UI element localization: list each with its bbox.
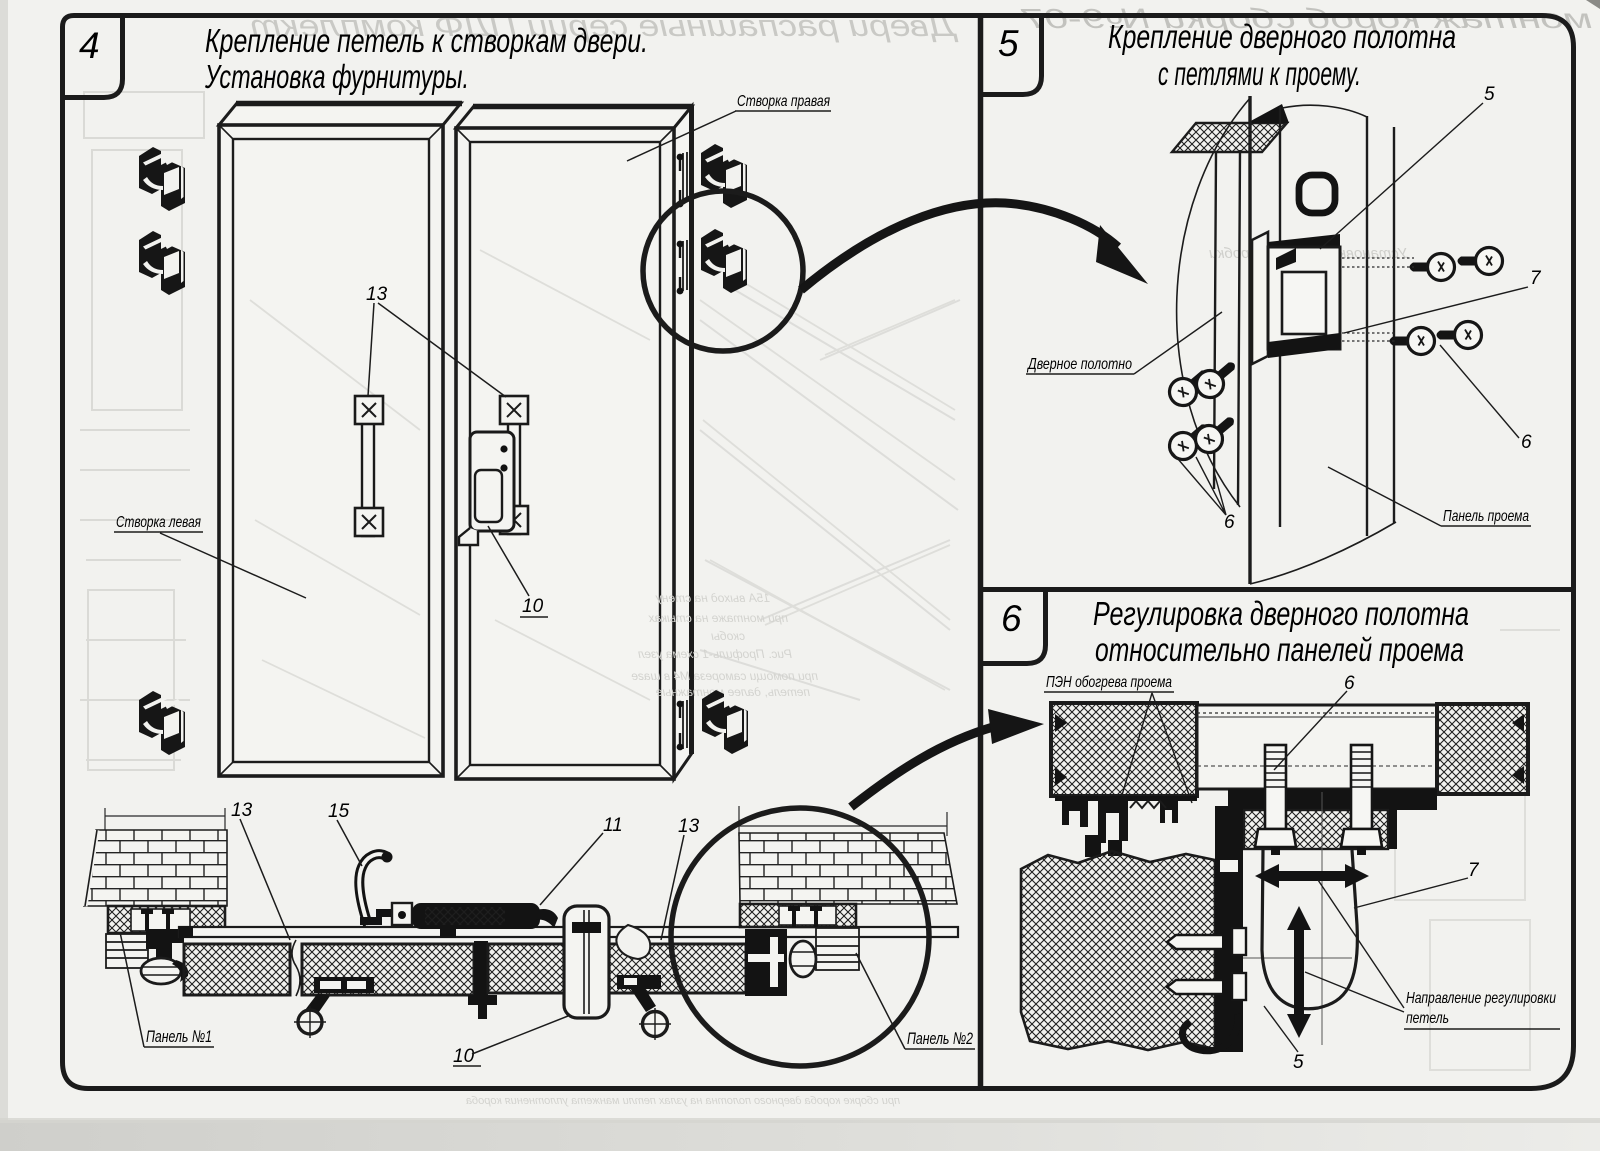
svg-text:скобы: скобы <box>711 629 745 643</box>
svg-text:петель, далее монтажные: петель, далее монтажные <box>655 685 810 699</box>
svg-text:ПЭН обогрева проема: ПЭН обогрева проема <box>1046 674 1172 691</box>
svg-text:10: 10 <box>522 596 544 617</box>
svg-text:Створка левая: Створка левая <box>116 514 201 531</box>
svg-text:Панель №1: Панель №1 <box>146 1027 212 1046</box>
svg-text:5: 5 <box>998 23 1019 64</box>
svg-text:15А выход на стену: 15А выход на стену <box>655 591 770 605</box>
svg-text:петель: петель <box>1406 1010 1449 1027</box>
svg-text:Установка фурнитуры.: Установка фурнитуры. <box>204 58 469 95</box>
svg-text:6: 6 <box>1344 673 1355 694</box>
svg-text:Крепление дверного полотна: Крепление дверного полотна <box>1108 18 1456 55</box>
svg-text:13: 13 <box>366 284 388 305</box>
svg-text:Направление регулировки: Направление регулировки <box>1406 990 1556 1007</box>
svg-text:13: 13 <box>231 800 253 821</box>
svg-text:Створка правая: Створка правая <box>737 93 830 110</box>
svg-text:при помощи самореза М4 в шаге: при помощи самореза М4 в шаге <box>631 669 818 683</box>
svg-text:Регулировка дверного полотна: Регулировка дверного полотна <box>1093 595 1469 632</box>
svg-text:7: 7 <box>1530 268 1542 289</box>
svg-text:Панель №2: Панель №2 <box>907 1029 973 1048</box>
svg-text:Рис. Профиль-1 схема узел: Рис. Профиль-1 схема узел <box>638 647 792 661</box>
svg-text:с петлями к проему.: с петлями к проему. <box>1158 55 1361 92</box>
svg-text:11: 11 <box>603 815 623 836</box>
svg-text:Крепление петель к створкам дв: Крепление петель к створкам двери. <box>205 22 648 59</box>
svg-text:6: 6 <box>1521 432 1532 453</box>
svg-text:5: 5 <box>1484 84 1495 105</box>
svg-text:относительно панелей проема: относительно панелей проема <box>1095 631 1464 668</box>
svg-text:7: 7 <box>1468 860 1480 881</box>
svg-text:6: 6 <box>1001 598 1022 639</box>
svg-text:10: 10 <box>453 1046 475 1067</box>
svg-text:Панель проема: Панель проема <box>1443 508 1529 525</box>
svg-text:15: 15 <box>328 801 350 822</box>
svg-text:при сборке короба дверного пол: при сборке короба дверного полотна на уз… <box>466 1095 900 1107</box>
svg-text:Дверное полотно: Дверное полотно <box>1026 356 1132 373</box>
svg-text:4: 4 <box>79 25 100 66</box>
svg-text:при монтаже на стыках: при монтаже на стыках <box>648 611 788 625</box>
svg-text:13: 13 <box>678 816 700 837</box>
svg-text:5: 5 <box>1293 1052 1304 1073</box>
